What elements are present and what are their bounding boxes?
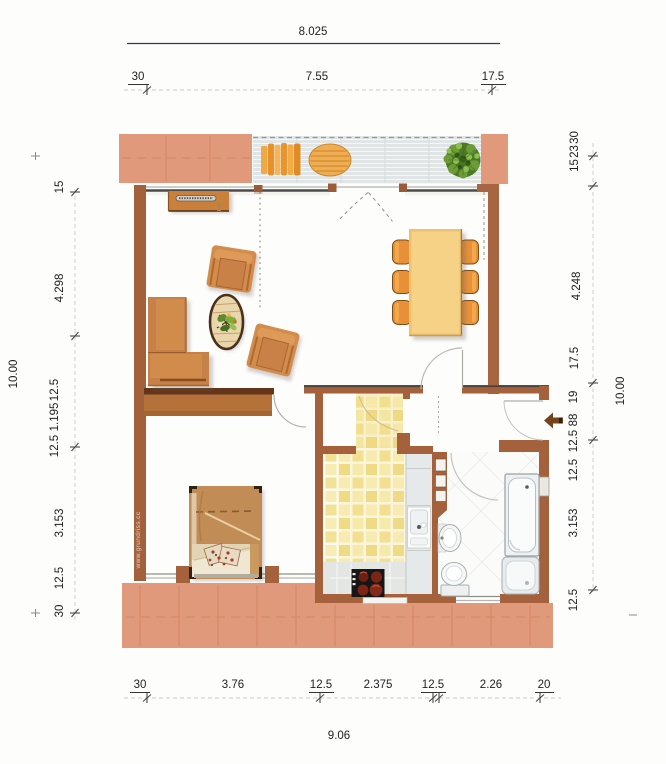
svg-text:8.025: 8.025 <box>299 26 328 38</box>
svg-text:4.298: 4.298 <box>54 274 66 303</box>
svg-text:4.248: 4.248 <box>571 272 583 301</box>
svg-text:17.5: 17.5 <box>569 347 581 369</box>
svg-text:12.5: 12.5 <box>568 430 580 452</box>
svg-text:12.5: 12.5 <box>422 679 444 691</box>
svg-text:20: 20 <box>538 679 551 691</box>
svg-text:30: 30 <box>132 71 145 83</box>
svg-text:www.grundriss.cc: www.grundriss.cc <box>135 511 142 569</box>
svg-text:2.26: 2.26 <box>480 679 502 691</box>
svg-text:2.375: 2.375 <box>364 679 393 691</box>
svg-text:1.195: 1.195 <box>49 403 61 432</box>
svg-text:12.5: 12.5 <box>568 589 580 611</box>
svg-text:12.5: 12.5 <box>49 379 61 401</box>
svg-text:30: 30 <box>134 679 147 691</box>
svg-text:88: 88 <box>568 414 580 427</box>
svg-text:12.5: 12.5 <box>49 435 61 457</box>
svg-text:19: 19 <box>568 391 580 404</box>
svg-text:12.5: 12.5 <box>54 567 66 589</box>
svg-text:15: 15 <box>54 181 66 194</box>
svg-text:3.76: 3.76 <box>222 679 244 691</box>
svg-text:10.00: 10.00 <box>615 377 627 406</box>
svg-text:7.55: 7.55 <box>306 71 328 83</box>
svg-text:3.153: 3.153 <box>568 509 580 538</box>
svg-text:30: 30 <box>54 605 66 618</box>
svg-text:12.5: 12.5 <box>310 679 332 691</box>
svg-text:30: 30 <box>569 131 581 144</box>
svg-text:3.153: 3.153 <box>54 509 66 538</box>
svg-text:10.00: 10.00 <box>8 360 20 389</box>
svg-text:12.5: 12.5 <box>568 459 580 481</box>
svg-text:23: 23 <box>569 145 581 158</box>
svg-text:9.06: 9.06 <box>328 730 350 742</box>
svg-text:17.5: 17.5 <box>482 71 504 83</box>
svg-text:15: 15 <box>569 159 581 172</box>
